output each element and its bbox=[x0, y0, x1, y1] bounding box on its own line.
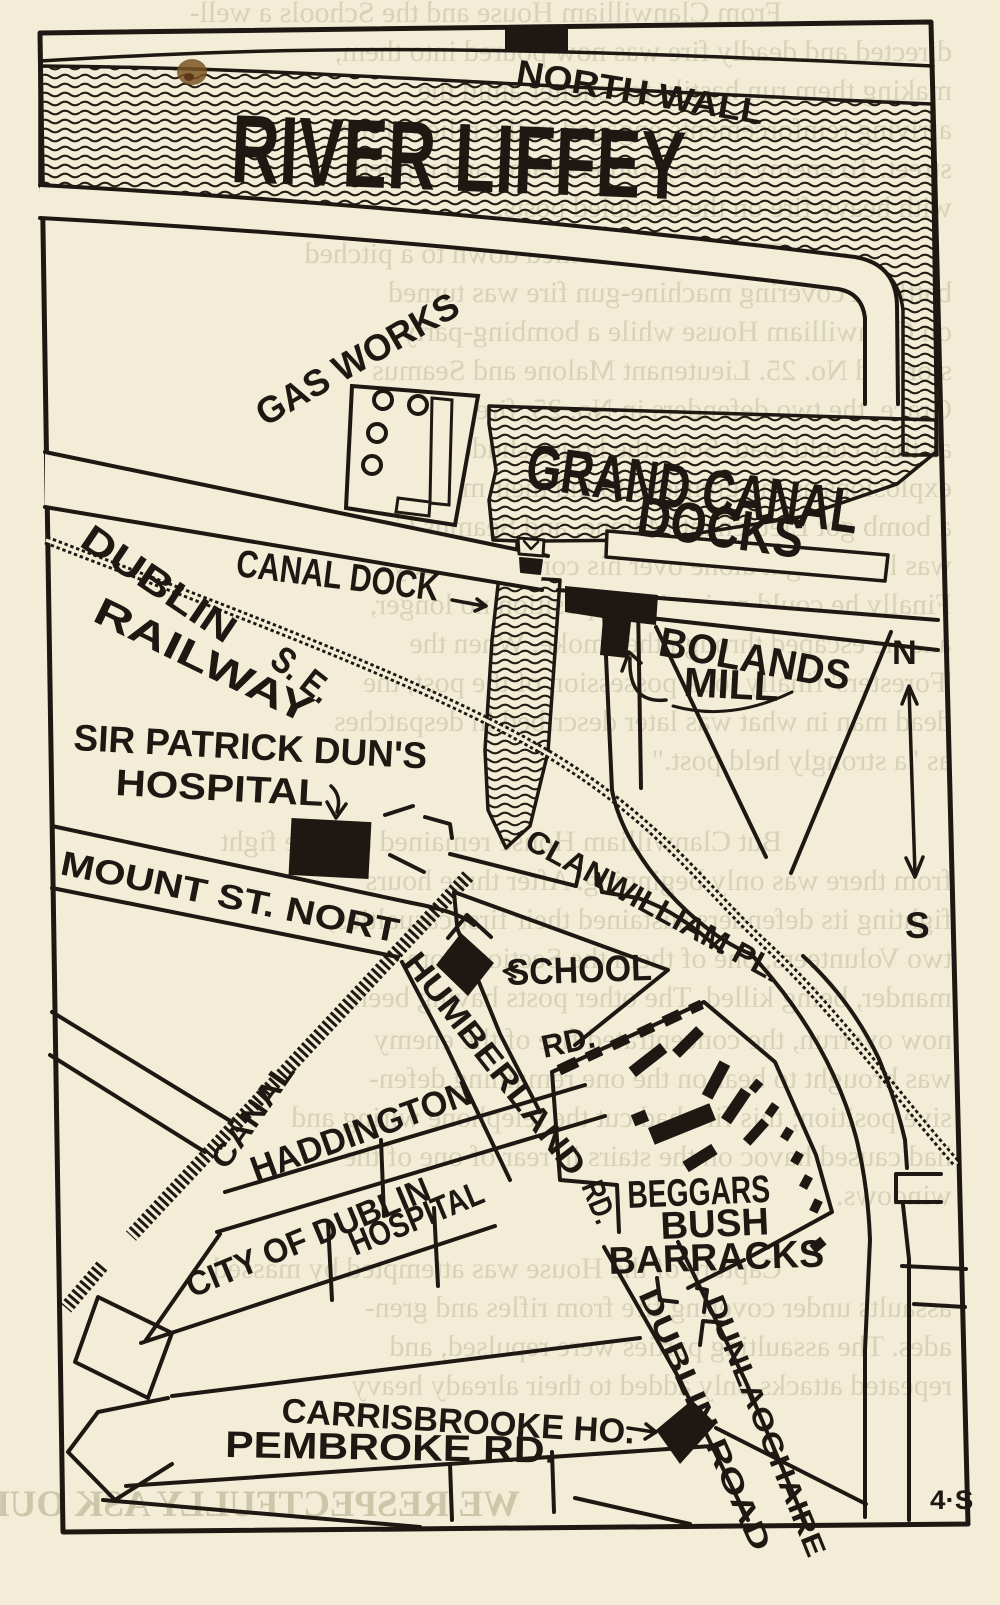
svg-text:RIVER LIFFEY: RIVER LIFFEY bbox=[229, 94, 687, 221]
svg-text:BARRACKS: BARRACKS bbox=[608, 1232, 825, 1283]
svg-text:repeated attacks only added to: repeated attacks only added to their alr… bbox=[351, 1369, 952, 1402]
svg-text:as "a strongly held post.": as "a strongly held post." bbox=[652, 744, 952, 777]
svg-text:N: N bbox=[892, 634, 917, 672]
svg-text:4·S: 4·S bbox=[930, 1484, 973, 1515]
svg-text:WE RESPECTFULLY ASK OUR READER: WE RESPECTFULLY ASK OUR READERS bbox=[0, 1484, 520, 1525]
svg-text:SCHOOL: SCHOOL bbox=[506, 947, 653, 994]
svg-text:PEMBROKE RD.: PEMBROKE RD. bbox=[225, 1424, 557, 1471]
svg-text:S: S bbox=[905, 904, 930, 946]
